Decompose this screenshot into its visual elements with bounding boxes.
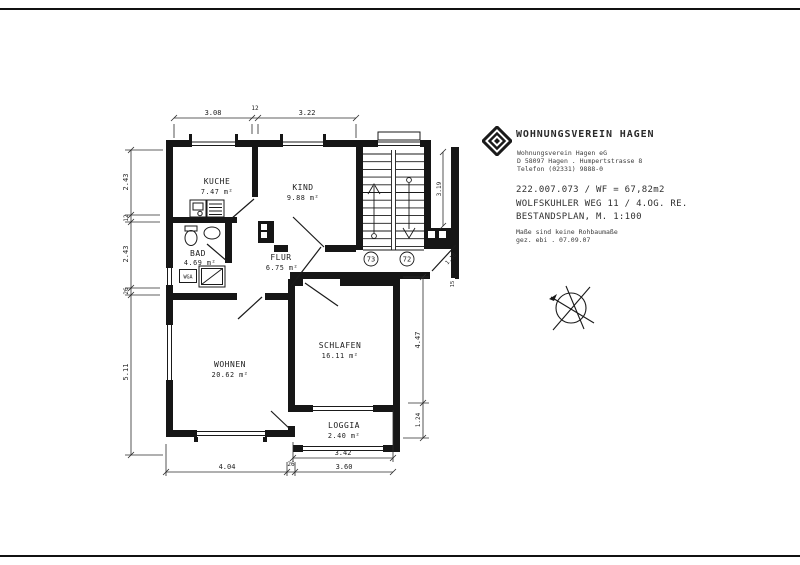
dim-label: 26: [123, 287, 130, 295]
stair-treads-left: [363, 154, 391, 246]
room-label-kueche: KUCHE: [204, 177, 231, 186]
dim-label: 4.04: [219, 463, 236, 471]
room-area-kueche: 7.47 m²: [201, 188, 233, 196]
room-labels: KUCHE 7.47 m² KIND 9.88 m² BAD 4.69 m² F…: [184, 177, 361, 440]
dim-label: 3.08: [205, 109, 222, 117]
north-symbol: [549, 286, 594, 330]
dim-label: 12: [251, 105, 259, 112]
dim-label: 15: [450, 281, 456, 288]
dim-label: 3.60: [336, 463, 353, 471]
door-badge-72: 72: [403, 256, 411, 264]
door-number-badges: 73 72: [364, 252, 414, 266]
object-number: 222.007.073 / WF = 67,82m2: [516, 184, 688, 198]
door-swings: [207, 199, 456, 430]
dim-label: 1.24: [415, 412, 422, 427]
door-badge-73: 73: [367, 256, 375, 264]
note-line: Maße sind keine Rohbaumaße: [516, 228, 618, 236]
room-label-flur: FLUR: [270, 253, 291, 262]
company-title: WOHNUNGSVEREIN HAGEN: [516, 129, 654, 140]
floor-plan-drawing: WGA 3.08 12 3.22 2.43 12 2.43 26 5.11: [0, 0, 800, 565]
room-area-flur: 6.75 m²: [266, 264, 298, 272]
plan-type: BESTANDSPLAN, M. 1:100: [516, 211, 688, 225]
room-area-wohnen: 20.62 m²: [212, 371, 249, 379]
kitchen-fixtures: [190, 200, 224, 217]
plan-notes: Maße sind keine Rohbaumaße gez. ebi . 07…: [516, 228, 618, 244]
room-label-wohnen: WOHNEN: [214, 360, 246, 369]
address-line: Telefon (02331) 9888-0: [517, 165, 642, 173]
bestandsplan-sheet: WGA 3.08 12 3.22 2.43 12 2.43 26 5.11: [0, 0, 800, 565]
room-label-kind: KIND: [292, 183, 313, 192]
dim-label: 2.43: [122, 174, 130, 191]
room-area-bad: 4.69 m²: [184, 259, 216, 267]
stair-treads-right: [396, 154, 424, 246]
wga-label: WGA: [183, 275, 192, 281]
staircase: [363, 150, 424, 250]
washbasin-icon: [204, 227, 220, 239]
duct-shafts: [258, 221, 451, 243]
dim-label: 5.11: [122, 364, 130, 381]
company-address: Wohnungsverein Hagen eG D 58097 Hagen . …: [517, 149, 642, 173]
room-area-schlafen: 16.11 m²: [322, 352, 359, 360]
room-label-bad: BAD: [190, 249, 206, 258]
dim-label: 26: [287, 461, 295, 468]
dim-label: 12: [123, 214, 130, 222]
dim-label: 4.47: [414, 332, 422, 349]
object-address: WOLFSKUHLER WEG 11 / 4.OG. RE.: [516, 198, 688, 212]
address-line: D 58097 Hagen . Humpertstrasse 8: [517, 157, 642, 165]
room-area-loggia: 2.40 m²: [328, 432, 360, 440]
room-area-kind: 9.88 m²: [287, 194, 319, 202]
plan-reference-block: 222.007.073 / WF = 67,82m2 WOLFSKUHLER W…: [516, 184, 688, 225]
room-label-loggia: LOGGIA: [328, 421, 360, 430]
address-line: Wohnungsverein Hagen eG: [517, 149, 642, 157]
dim-label: 3.19: [436, 181, 443, 196]
dim-label: 2.43: [122, 246, 130, 263]
note-line: gez. ebi . 07.09.07: [516, 236, 618, 244]
room-label-schlafen: SCHLAFEN: [319, 341, 362, 350]
dim-label: 3.42: [335, 449, 352, 457]
dim-label: 3.22: [299, 109, 316, 117]
